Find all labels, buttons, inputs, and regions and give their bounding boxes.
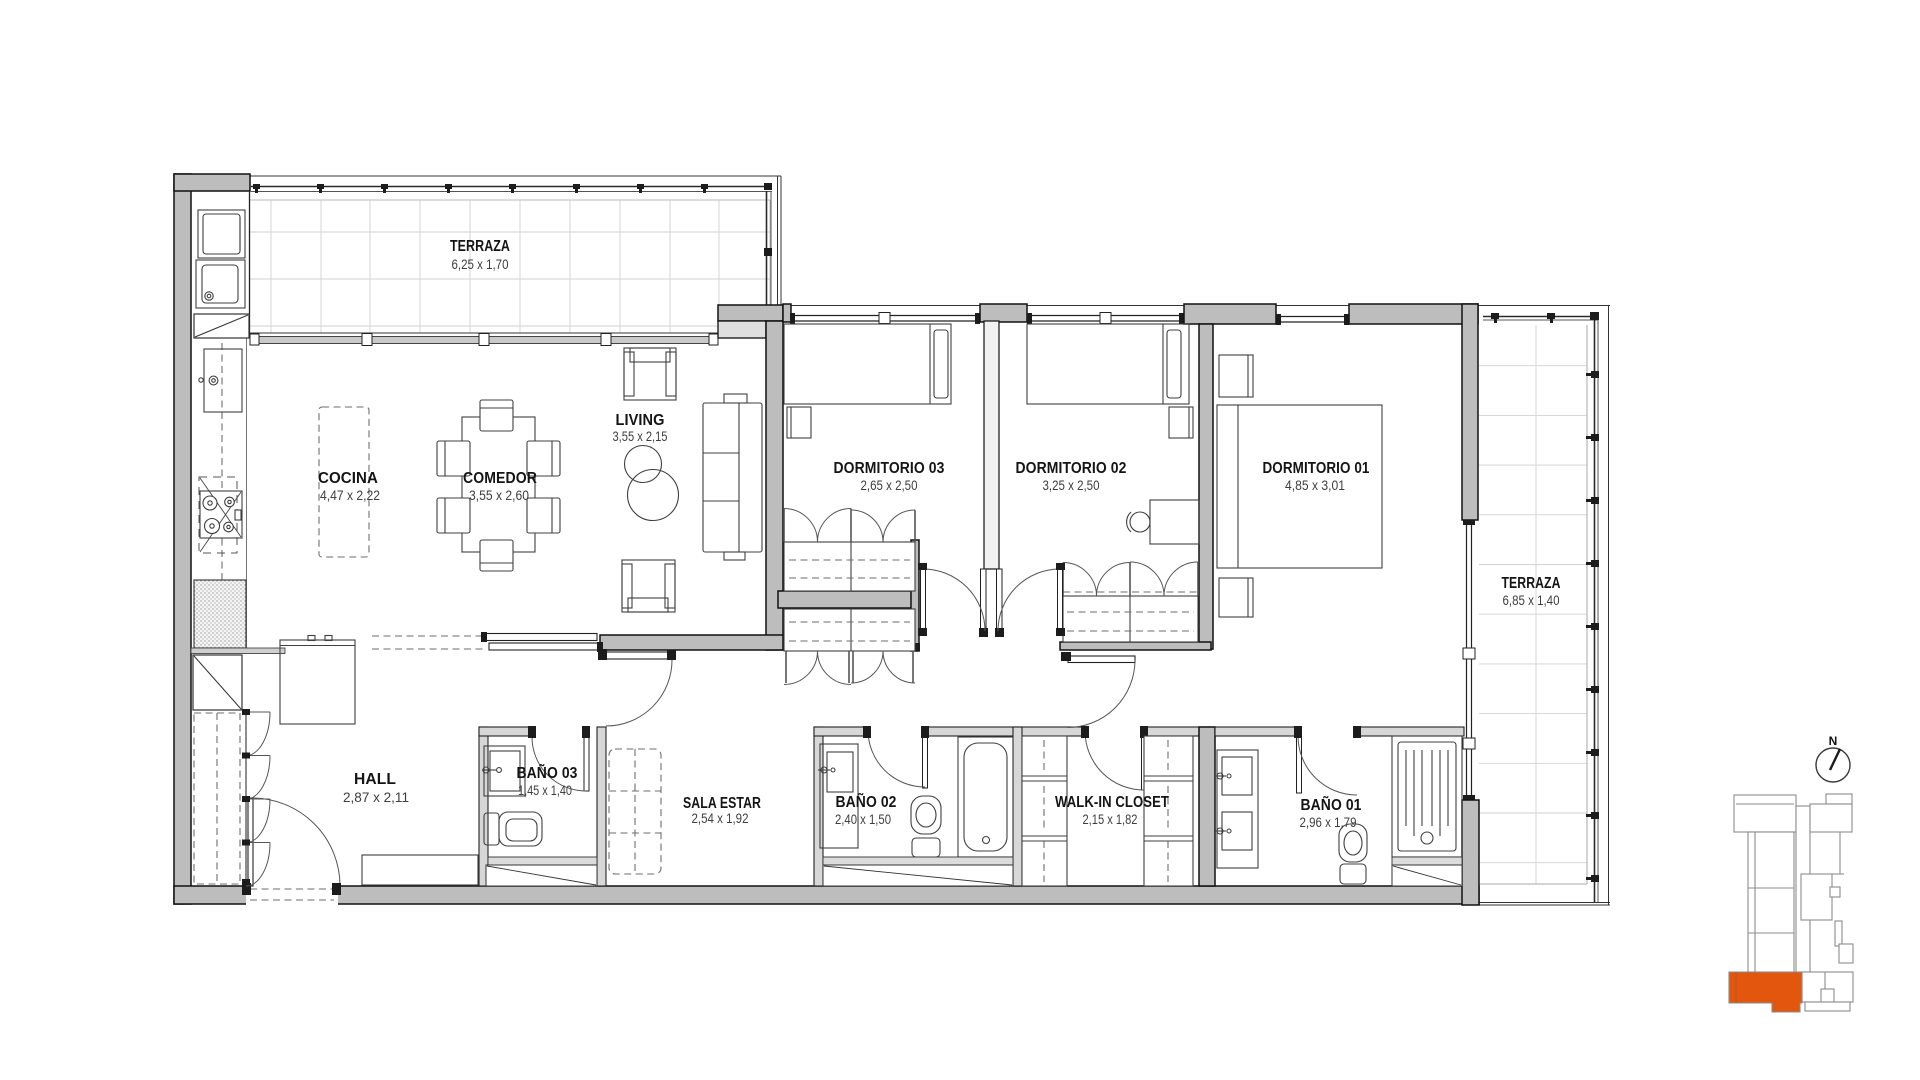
svg-text:3,55 x 2,15: 3,55 x 2,15 <box>613 429 668 444</box>
svg-text:6,85 x 1,40: 6,85 x 1,40 <box>1503 593 1560 608</box>
svg-text:TERRAZA: TERRAZA <box>1502 575 1561 592</box>
svg-text:DORMITORIO 01: DORMITORIO 01 <box>1263 460 1370 477</box>
svg-text:HALL: HALL <box>354 771 396 788</box>
svg-text:2,65 x 2,50: 2,65 x 2,50 <box>861 478 918 493</box>
svg-text:WALK-IN CLOSET: WALK-IN CLOSET <box>1055 794 1169 811</box>
svg-text:4,47 x 2,22: 4,47 x 2,22 <box>320 488 380 503</box>
svg-text:DORMITORIO 03: DORMITORIO 03 <box>834 460 945 477</box>
svg-text:COMEDOR: COMEDOR <box>463 470 537 487</box>
svg-text:2,54 x 1,92: 2,54 x 1,92 <box>692 811 749 826</box>
svg-text:BAÑO 03: BAÑO 03 <box>517 762 578 782</box>
svg-text:3,55 x 2,60: 3,55 x 2,60 <box>469 488 529 503</box>
svg-text:4,85 x 3,01: 4,85 x 3,01 <box>1285 478 1345 493</box>
svg-text:BAÑO 01: BAÑO 01 <box>1301 794 1362 814</box>
svg-text:COCINA: COCINA <box>318 470 378 487</box>
svg-text:3,25 x 2,50: 3,25 x 2,50 <box>1043 478 1100 493</box>
svg-text:6,25 x 1,70: 6,25 x 1,70 <box>452 257 509 272</box>
svg-text:BAÑO 02: BAÑO 02 <box>836 791 897 811</box>
svg-text:N: N <box>1829 734 1838 748</box>
svg-text:TERRAZA: TERRAZA <box>450 238 510 255</box>
svg-text:2,40 x 1,50: 2,40 x 1,50 <box>835 812 891 827</box>
svg-text:1,45 x 1,40: 1,45 x 1,40 <box>518 783 572 798</box>
svg-text:DORMITORIO 02: DORMITORIO 02 <box>1016 460 1127 477</box>
svg-text:2,15 x 1,82: 2,15 x 1,82 <box>1083 812 1138 827</box>
svg-text:2,87 x 2,11: 2,87 x 2,11 <box>343 790 409 805</box>
svg-text:SALA ESTAR: SALA ESTAR <box>683 795 761 812</box>
svg-text:2,96 x 1,79: 2,96 x 1,79 <box>1300 815 1357 830</box>
svg-text:LIVING: LIVING <box>616 412 665 429</box>
